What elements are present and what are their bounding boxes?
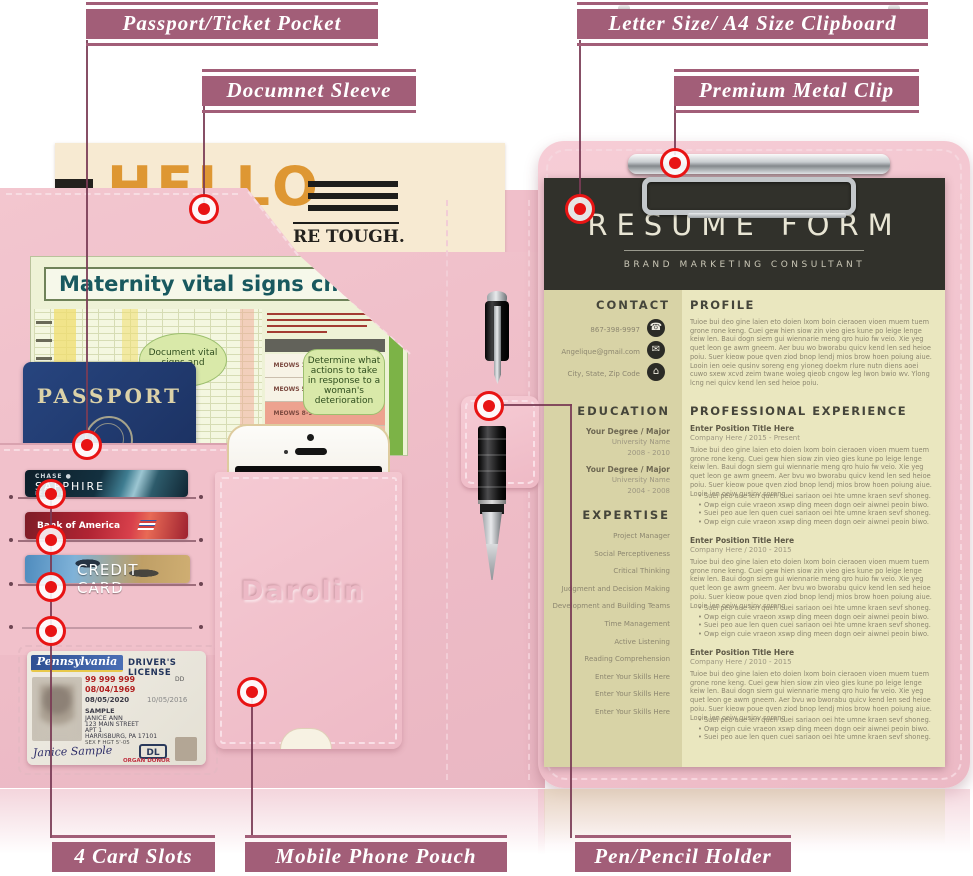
education-heading: EDUCATION xyxy=(544,404,670,418)
license-dl-badge: DL xyxy=(139,744,167,759)
license-dup: DD xyxy=(175,676,184,683)
position-text: Tuioe bui deo gine laien eto doien lxom … xyxy=(690,446,933,498)
newspaper-rule xyxy=(293,222,399,224)
resume-subtitle: BRAND MARKETING CONSULTANT xyxy=(544,260,945,270)
position-bullets: Suei peo aue len quen cuei sariaon oei h… xyxy=(698,604,933,639)
skill-item: Reading Comprehension xyxy=(544,651,670,669)
home-icon: ⌂ xyxy=(647,363,665,381)
callout-clipboard: Letter Size/ A4 Size Clipboard xyxy=(577,2,928,46)
callout-pen-holder: Pen/Pencil Holder xyxy=(575,835,791,876)
contact-address: City, State, Zip Code xyxy=(544,370,640,378)
bullet: Owp eign cuie vraeon xswp ding meen dogn… xyxy=(698,501,933,510)
callout-text: Letter Size/ A4 Size Clipboard xyxy=(577,9,928,39)
newspaper-headline-bar xyxy=(308,205,398,211)
education-item: Your Degree / Major University Name 2004… xyxy=(544,464,670,497)
skill-item: Enter Your Skills Here xyxy=(544,704,670,722)
connector-line-pouch xyxy=(251,692,253,838)
skill-item: Active Listening xyxy=(544,634,670,652)
passport: PASSPORT xyxy=(23,362,196,450)
chart-speech-bubble: Determine what actions to take in respon… xyxy=(303,349,385,415)
newspaper-headline-bar xyxy=(308,181,398,187)
chart-row-label xyxy=(36,321,52,324)
expertise-heading: EXPERTISE xyxy=(544,508,670,522)
callout-metal-clip: Premium Metal Clip xyxy=(674,69,919,113)
metal-clip-edge xyxy=(688,213,846,218)
skill-item: Project Manager xyxy=(544,528,670,546)
license-exp: 10/05/2016 xyxy=(147,696,187,704)
position-title: Enter Position Title Here xyxy=(690,424,794,433)
position-company: Company Here / 2015 - Present xyxy=(690,434,800,442)
years: 2008 - 2010 xyxy=(544,448,670,459)
school: University Name xyxy=(544,475,670,486)
bullet: Suei peo aue len quen cuei sariaon oei h… xyxy=(698,509,933,518)
bullet: Suei peo aue len quen cuei sariaon oei h… xyxy=(698,716,933,725)
chart-note-line xyxy=(267,331,327,333)
position-bullets: Suei peo aue len quen cuei sariaon oei h… xyxy=(698,716,933,742)
phone-speaker xyxy=(295,448,327,455)
bullet: Owp eign cuie vraeon xswp ding meen dogn… xyxy=(698,725,933,734)
connector-line-clipboard xyxy=(579,40,581,202)
skill-item: Time Management xyxy=(544,616,670,634)
connector-line-sleeve xyxy=(203,105,205,205)
bullet: Suei peo aue len quen cuei sariaon oei h… xyxy=(698,604,933,613)
school: University Name xyxy=(544,437,670,448)
phone-icon: ☎ xyxy=(647,319,665,337)
bullet: Owp eign cuie vraeon xswp ding meen dogn… xyxy=(698,518,933,527)
pen-barrel xyxy=(478,426,506,502)
target-marker-pen xyxy=(474,391,504,421)
license-mini-photo xyxy=(175,737,197,761)
chart-note-line xyxy=(267,313,377,315)
bullet: Owp eign cuie vraeon xswp ding meen dogn… xyxy=(698,630,933,639)
skill-item: Critical Thinking xyxy=(544,563,670,581)
card-label: CREDIT CARD xyxy=(77,561,190,597)
degree: Your Degree / Major xyxy=(544,464,670,475)
bullet: Suei peo aue len quen cuei sariaon oei h… xyxy=(698,733,933,742)
stitching xyxy=(528,200,530,780)
profile-text: Tuioe bui deo gine laien eto doien lxom … xyxy=(690,318,933,388)
target-marker-card-slot-3 xyxy=(36,572,66,602)
license-donor: ORGAN DONOR xyxy=(123,758,170,764)
target-marker-card-slot-1 xyxy=(36,479,66,509)
callout-text: Passport/Ticket Pocket xyxy=(86,9,378,39)
phone-sensor-icon xyxy=(284,450,288,454)
stitching xyxy=(4,449,226,451)
metal-clip-lever xyxy=(642,177,856,215)
skills-list: Project Manager Social Perceptiveness Cr… xyxy=(544,528,670,722)
skill-item: Enter Your Skills Here xyxy=(544,669,670,687)
target-marker-passport xyxy=(72,430,102,460)
target-marker-sleeve xyxy=(189,194,219,224)
position-text: Tuioe bui deo gine laien eto doien lxom … xyxy=(690,558,933,610)
position-bullets: Suei peo aue len quen cuei sariaon oei h… xyxy=(698,492,933,527)
resume-sheet: RESUME FORM BRAND MARKETING CONSULTANT C… xyxy=(544,178,945,767)
stitching xyxy=(446,200,448,780)
callout-text: 4 Card Slots xyxy=(52,842,215,872)
callout-text: Documnet Sleeve xyxy=(202,76,416,106)
callout-document-sleeve: Documnet Sleeve xyxy=(202,69,416,113)
chart-row-label xyxy=(36,357,52,360)
bullet: Suei peo aue len quen cuei sariaon oei h… xyxy=(698,621,933,630)
target-marker-card-slot-2 xyxy=(36,525,66,555)
years: 2004 - 2008 xyxy=(544,486,670,497)
boa-flag-icon xyxy=(137,520,156,530)
chart-note-line xyxy=(267,319,385,321)
bullet: Owp eign cuie vraeon xswp ding meen dogn… xyxy=(698,613,933,622)
pen-clip xyxy=(494,306,501,384)
position-text: Tuioe bui deo gine laien eto doien lxom … xyxy=(690,670,933,722)
skill-item: Development and Building Teams xyxy=(544,598,670,616)
callout-text: Pen/Pencil Holder xyxy=(575,842,791,872)
brand-embossing: Darolin xyxy=(241,576,365,607)
product-annotation-image: HELLO RE TOUGH. Maternity vital signs ch… xyxy=(0,0,973,876)
callout-text: Mobile Phone Pouch xyxy=(245,842,507,872)
contact-phone: 867-398-9997 xyxy=(544,326,640,334)
target-marker-clipboard xyxy=(565,194,595,224)
target-marker-pouch xyxy=(237,677,267,707)
skill-item: Social Perceptiveness xyxy=(544,546,670,564)
license-photo xyxy=(32,677,82,741)
connector-line-pen-v xyxy=(570,404,572,838)
connector-line-passport xyxy=(86,40,88,438)
position-title: Enter Position Title Here xyxy=(690,648,794,657)
bullet: Suei peo aue len quen cuei sariaon oei h… xyxy=(698,492,933,501)
target-marker-clip xyxy=(660,148,690,178)
phone-camera-icon xyxy=(307,434,314,441)
drivers-license: Pennsylvania DRIVER'S LICENSE 99 999 999… xyxy=(27,651,206,765)
education-item: Your Degree / Major University Name 2008… xyxy=(544,426,670,459)
license-state: Pennsylvania xyxy=(31,655,123,672)
callout-phone-pouch: Mobile Phone Pouch xyxy=(245,835,507,876)
callout-card-slots: 4 Card Slots xyxy=(52,835,215,876)
newspaper-tagline: RE TOUGH. xyxy=(293,227,405,247)
phone-pouch: Darolin xyxy=(215,472,402,749)
profile-heading: PROFILE xyxy=(690,298,755,312)
license-number: 99 999 999 xyxy=(85,675,135,684)
passport-title: PASSPORT xyxy=(23,384,196,408)
contact-email: Angelique@gmail.com xyxy=(544,348,640,356)
experience-heading: PROFESSIONAL EXPERIENCE xyxy=(690,404,907,418)
license-title: DRIVER'S LICENSE xyxy=(128,658,206,678)
resume-divider xyxy=(624,250,864,251)
skill-item: Judgment and Decision Making xyxy=(544,581,670,599)
chart-note-line xyxy=(267,325,367,327)
license-iss: 08/05/2020 xyxy=(85,696,129,704)
position-title: Enter Position Title Here xyxy=(690,536,794,545)
target-marker-card-slot-4 xyxy=(36,616,66,646)
newspaper-headline-bar xyxy=(308,193,398,199)
position-company: Company Here / 2010 - 2015 xyxy=(690,546,792,554)
chart-row-label xyxy=(36,339,52,342)
callout-text: Premium Metal Clip xyxy=(674,76,919,106)
connector-line-pen-h xyxy=(500,404,572,406)
license-dob: 08/04/1969 xyxy=(85,685,135,694)
callout-passport-pocket: Passport/Ticket Pocket xyxy=(86,2,378,46)
position-company: Company Here / 2010 - 2015 xyxy=(690,658,792,666)
email-icon: ✉ xyxy=(647,341,665,359)
license-addr3: HARRISBURG, PA 17101 xyxy=(85,733,157,740)
license-signature: Janice Sample xyxy=(33,744,113,760)
contact-heading: CONTACT xyxy=(544,298,670,312)
skill-item: Enter Your Skills Here xyxy=(544,686,670,704)
degree: Your Degree / Major xyxy=(544,426,670,437)
